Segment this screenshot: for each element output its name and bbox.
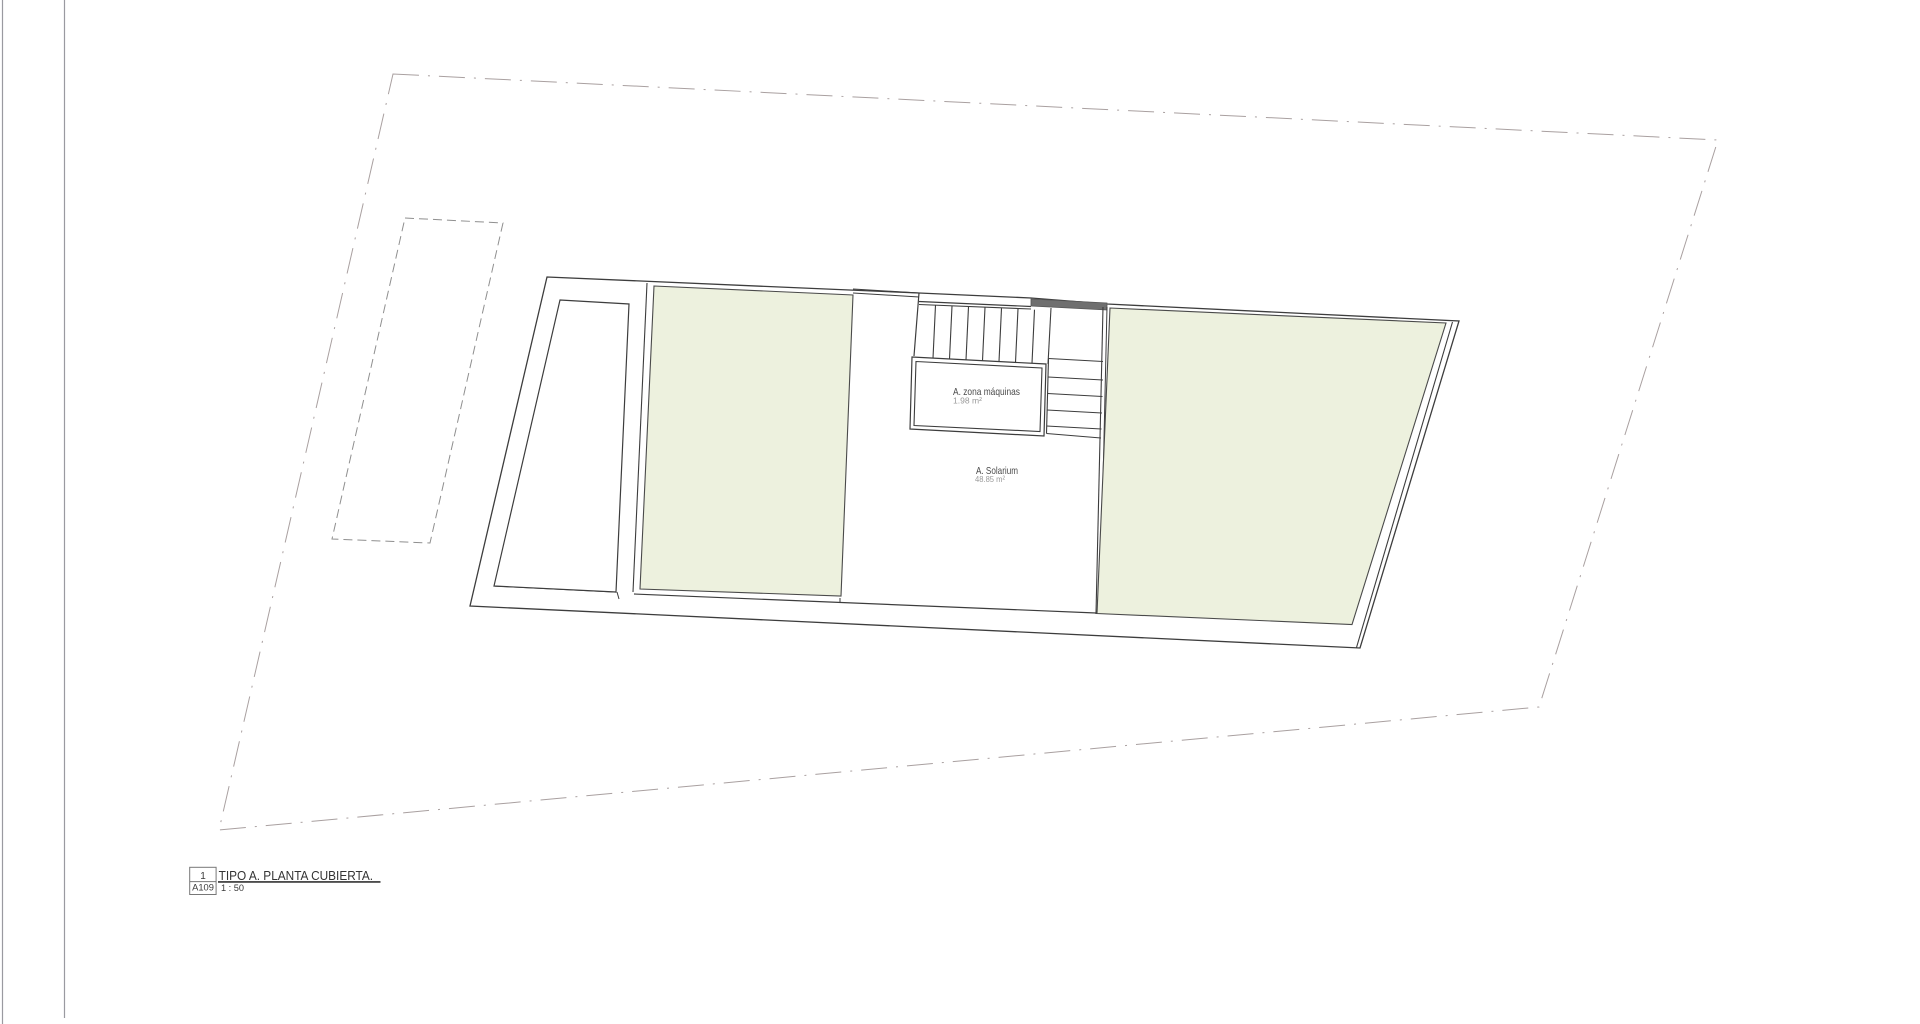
svg-text:A109: A109 <box>192 883 214 893</box>
svg-text:1: 1 <box>200 871 206 882</box>
svg-text:48.85 m²: 48.85 m² <box>975 474 1005 484</box>
svg-text:1.98 m²: 1.98 m² <box>953 396 982 406</box>
svg-text:TIPO A. PLANTA CUBIERTA.: TIPO A. PLANTA CUBIERTA. <box>219 868 374 883</box>
svg-text:1 : 50: 1 : 50 <box>221 883 244 893</box>
